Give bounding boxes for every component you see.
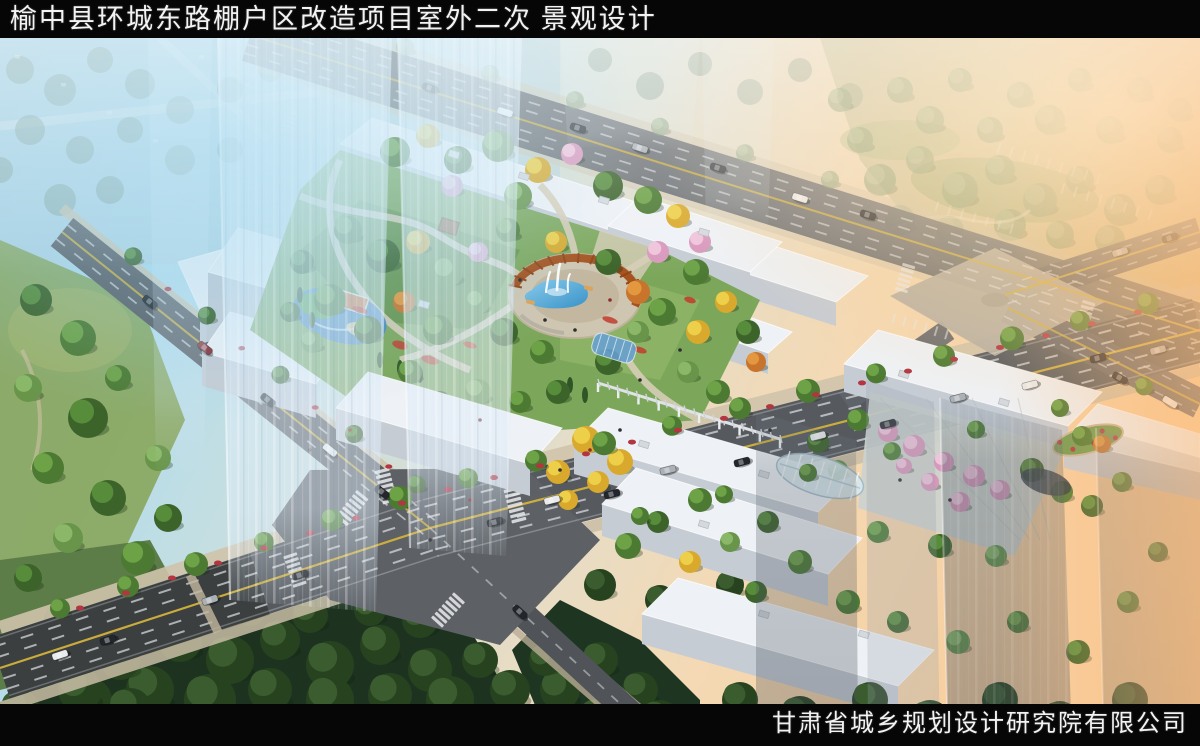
aerial-rendering [0, 0, 1200, 746]
title-bar: 榆中县环城东路棚户区改造项目室外二次 景观设计 [0, 0, 1200, 38]
rendering-board: 榆中县环城东路棚户区改造项目室外二次 景观设计 甘肃省城乡规划设计研究院有限公司 [0, 0, 1200, 746]
footer-bar: 甘肃省城乡规划设计研究院有限公司 [0, 704, 1200, 746]
company-name: 甘肃省城乡规划设计研究院有限公司 [762, 711, 1200, 737]
project-title: 榆中县环城东路棚户区改造项目室外二次 景观设计 [0, 4, 667, 34]
